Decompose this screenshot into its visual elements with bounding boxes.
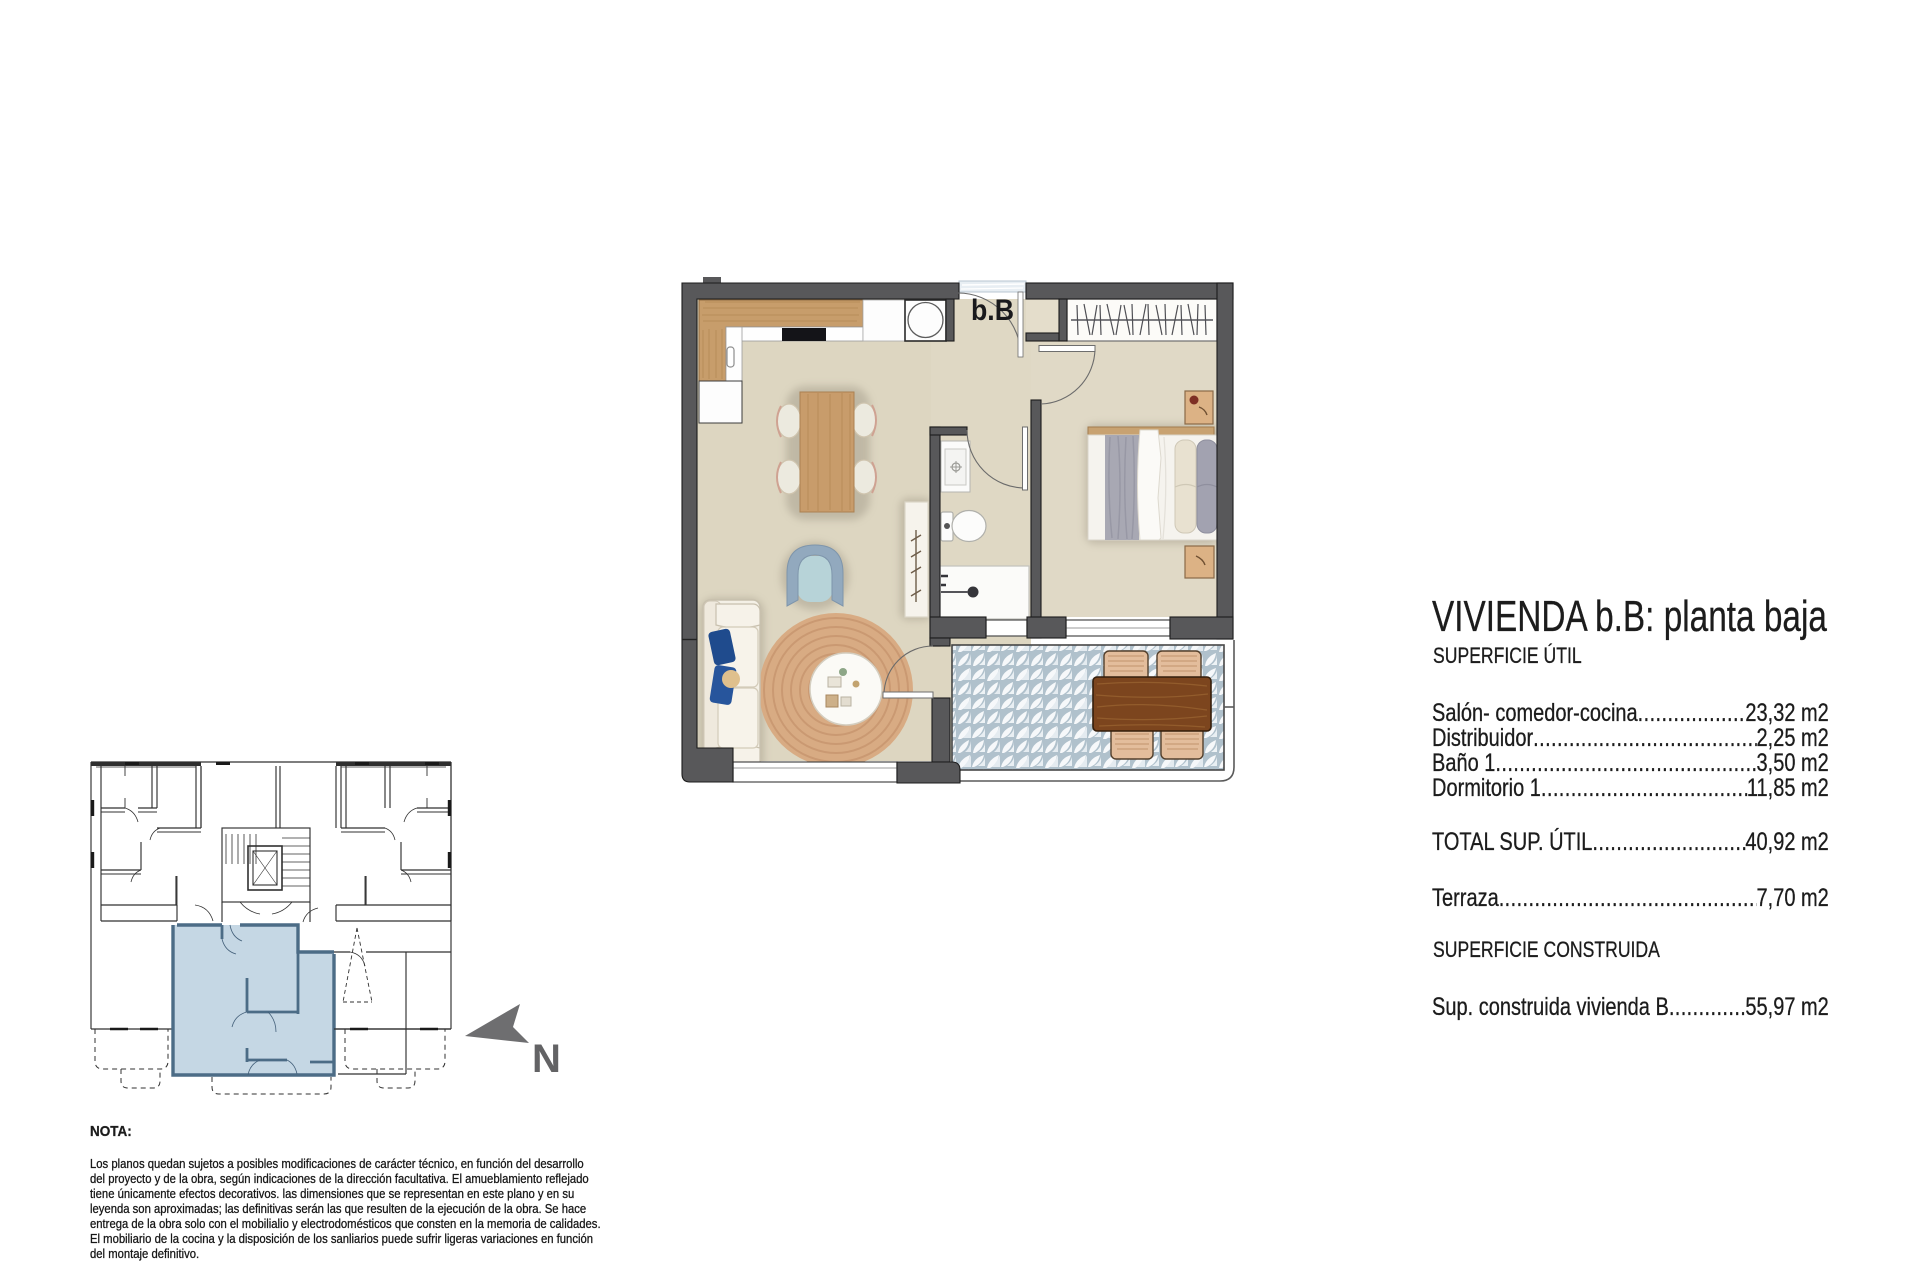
svg-text:N: N (532, 1037, 561, 1081)
svg-text:b.B: b.B (971, 294, 1014, 327)
